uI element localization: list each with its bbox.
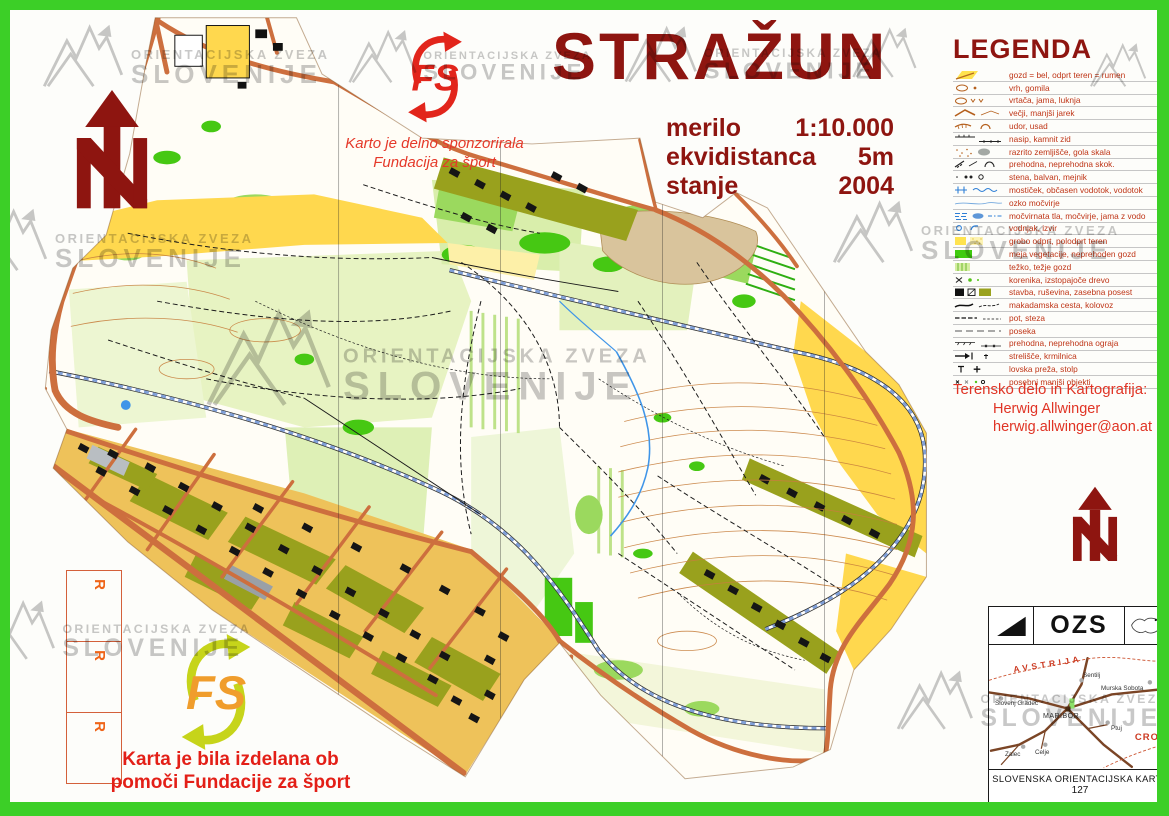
legend-label: vrh, gomila: [1009, 84, 1050, 92]
legend-row: udor, usad: [953, 120, 1169, 133]
cartographer-name: Herwig Allwinger: [993, 400, 1169, 418]
legend-rows: gozd = bel, odprt teren = rumen vrh, gom…: [953, 69, 1169, 389]
town-label: Murska Sobota: [1101, 685, 1143, 692]
legend-label: stavba, ruševina, zasebna posest: [1009, 288, 1132, 296]
ozs-triangle-icon: [989, 607, 1034, 644]
legend-label: prehodna, neprehodna skok.: [1009, 160, 1115, 168]
town-label: Zalec: [1005, 751, 1020, 758]
ozs-label: OZS: [1034, 607, 1124, 644]
stream-icon: [953, 184, 1009, 196]
legend-label: stena, balvan, mejnik: [1009, 173, 1087, 181]
range-icon: [953, 350, 1009, 362]
legend-label: gozd = bel, odprt teren = rumen: [1009, 71, 1125, 79]
boulder-icon: [953, 171, 1009, 183]
legend-row: vodnjak, izvir: [953, 223, 1169, 236]
legend-label: korenika, izstopajoče drevo: [1009, 276, 1110, 284]
thicket-icon: [953, 261, 1009, 273]
info-box: OZS: [988, 606, 1169, 805]
legend-row: pot, steza: [953, 312, 1169, 325]
town-label: Slovenj Gradec: [995, 700, 1038, 707]
road-icon: [953, 299, 1009, 311]
legend-row: nasip, kamnit zid: [953, 133, 1169, 146]
legend-row: prehodna, neprehodna skok.: [953, 159, 1169, 172]
legend-row: vrtača, jama, luknja: [953, 95, 1169, 108]
legend-row: večji, manjši jarek: [953, 107, 1169, 120]
legend-row: strelišče, krmilnica: [953, 351, 1169, 364]
margin-label: R: [91, 721, 108, 732]
legend-label: razrito zemljišče, gola skala: [1009, 148, 1110, 156]
legend-row: težko, težje gozd: [953, 261, 1169, 274]
info-box-header: OZS: [989, 607, 1169, 645]
spec-label: stanje: [666, 172, 738, 201]
margin-label: R: [91, 650, 108, 661]
rough-ground-icon: [953, 146, 1009, 158]
credits-block: Terensko delo in Kartografija: Herwig Al…: [953, 380, 1169, 436]
legend-label: grobo odprt, polodprt teren: [1009, 237, 1107, 245]
map-sheet: STRAŽUN merilo1:10.000 ekvidistanca5m st…: [0, 0, 1169, 816]
credits-heading: Terensko delo in Kartografija:: [953, 380, 1169, 400]
fs-logo-icon: FS: [393, 30, 477, 124]
fs-logo-icon: FS: [160, 632, 272, 752]
country-label: CRO: [1135, 732, 1159, 743]
legend-label: večji, manjši jarek: [1009, 109, 1074, 117]
legend-row: stavba, ruševina, zasebna posest: [953, 287, 1169, 300]
path-icon: [953, 312, 1009, 324]
town-label: Ptuj: [1111, 725, 1122, 732]
map-number: 127: [989, 785, 1169, 796]
margin-box: R: [66, 641, 122, 712]
legend-label: strelišče, krmilnica: [1009, 352, 1077, 360]
legend-row: korenika, izstopajoče drevo: [953, 274, 1169, 287]
town-label: Sentilj: [1083, 672, 1100, 679]
legend-row: mostiček, občasen vodotok, vodotok: [953, 184, 1169, 197]
legend-label: pot, steza: [1009, 314, 1045, 322]
location-map: AVSTRIJA CRO SentiljMurska SobotaSlovenj…: [989, 645, 1169, 769]
north-arrow-icon: [56, 90, 168, 212]
legend-label: mostiček, občasen vodotok, vodotok: [1009, 186, 1143, 194]
legend-row: močvirnata tla, močvirje, jama z vodo: [953, 210, 1169, 223]
legend-row: makadamska cesta, kolovoz: [953, 299, 1169, 312]
ditch-icon: [953, 107, 1009, 119]
root-icon: [953, 274, 1009, 286]
town-label: Celje: [1035, 749, 1049, 756]
legend-label: makadamska cesta, kolovoz: [1009, 301, 1113, 309]
wall-icon: [953, 133, 1009, 145]
perch-icon: [953, 363, 1009, 375]
pond: [121, 400, 131, 410]
legend-label: meja vegetacije, neprehoden gozd: [1009, 250, 1136, 258]
legend-row: poseka: [953, 325, 1169, 338]
legend-label: poseka: [1009, 327, 1036, 335]
depression-icon: [953, 95, 1009, 107]
knoll-icon: [953, 82, 1009, 94]
legend-label: lovska preža, stolp: [1009, 365, 1078, 373]
svg-text:FS: FS: [412, 57, 460, 98]
legend-label: prehodna, neprehodna ograja: [1009, 339, 1118, 347]
spec-value: 1:10.000: [795, 114, 894, 143]
spec-label: merilo: [666, 114, 741, 143]
svg-text:FS: FS: [186, 666, 246, 719]
spec-value: 5m: [858, 143, 894, 172]
legend-row: grobo odprt, polodprt teren: [953, 235, 1169, 248]
legend-row: ozko močvirje: [953, 197, 1169, 210]
legend-row: prehodna, neprehodna ograja: [953, 338, 1169, 351]
map-specs: merilo1:10.000 ekvidistanca5m stanje2004: [666, 114, 894, 201]
crossing-icon: [953, 158, 1009, 170]
legend-row: vrh, gomila: [953, 82, 1169, 95]
margin-label: R: [91, 579, 108, 590]
legend-label: vodnjak, izvir: [1009, 224, 1057, 232]
north-arrow-icon: [1066, 462, 1124, 588]
legend-label: nasip, kamnit zid: [1009, 135, 1071, 143]
legend-row: gozd = bel, odprt teren = rumen: [953, 69, 1169, 82]
forest-open-icon: [953, 69, 1009, 81]
legend: LEGENDA gozd = bel, odprt teren = rumen …: [953, 34, 1169, 389]
vegetation-icon: [953, 248, 1009, 260]
legend-title: LEGENDA: [953, 34, 1169, 65]
info-box-footer: SLOVENSKA ORIENTACIJSKA KARTA 127: [989, 769, 1169, 804]
ride-icon: [953, 325, 1009, 337]
cartographer-email: herwig.allwinger@aon.at: [993, 418, 1169, 436]
spec-value: 2004: [838, 172, 894, 201]
legend-row: razrito zemljišče, gola skala: [953, 146, 1169, 159]
erosion-icon: [953, 120, 1009, 132]
sponsor-line: pomoči Fundacije za šport: [98, 771, 363, 794]
margin-box: R: [66, 570, 122, 641]
town-label: MARIBOR: [1043, 713, 1079, 720]
spec-label: ekvidistanca: [666, 143, 816, 172]
fence-icon: [953, 338, 1009, 350]
legend-label: težko, težje gozd: [1009, 263, 1071, 271]
legend-label: vrtača, jama, luknja: [1009, 96, 1080, 104]
slovenia-outline-icon: [1124, 607, 1169, 644]
legend-label: udor, usad: [1009, 122, 1048, 130]
sponsor-line: Karta je bila izdelana ob: [98, 748, 363, 771]
open-land-icon: [953, 235, 1009, 247]
building-icon: [953, 286, 1009, 298]
sponsor-note-bottom: Karta je bila izdelana ob pomoči Fundaci…: [98, 748, 363, 794]
legend-label: ozko močvirje: [1009, 199, 1060, 207]
title-block: STRAŽUN: [552, 22, 924, 91]
sponsor-line: Karto je delno sponzorirala: [332, 134, 537, 153]
sponsor-line: Fundacija za šport: [332, 153, 537, 172]
map-title: STRAŽUN: [552, 22, 924, 91]
narrow-marsh-icon: [953, 197, 1009, 209]
marsh-icon: [953, 210, 1009, 222]
legend-row: stena, balvan, mejnik: [953, 171, 1169, 184]
sponsor-note-top: Karto je delno sponzorirala Fundacija za…: [332, 134, 537, 172]
legend-label: močvirnata tla, močvirje, jama z vodo: [1009, 212, 1146, 220]
spring-icon: [953, 222, 1009, 234]
legend-row: lovska preža, stolp: [953, 363, 1169, 376]
series-title: SLOVENSKA ORIENTACIJSKA KARTA: [989, 774, 1169, 784]
legend-row: meja vegetacije, neprehoden gozd: [953, 248, 1169, 261]
